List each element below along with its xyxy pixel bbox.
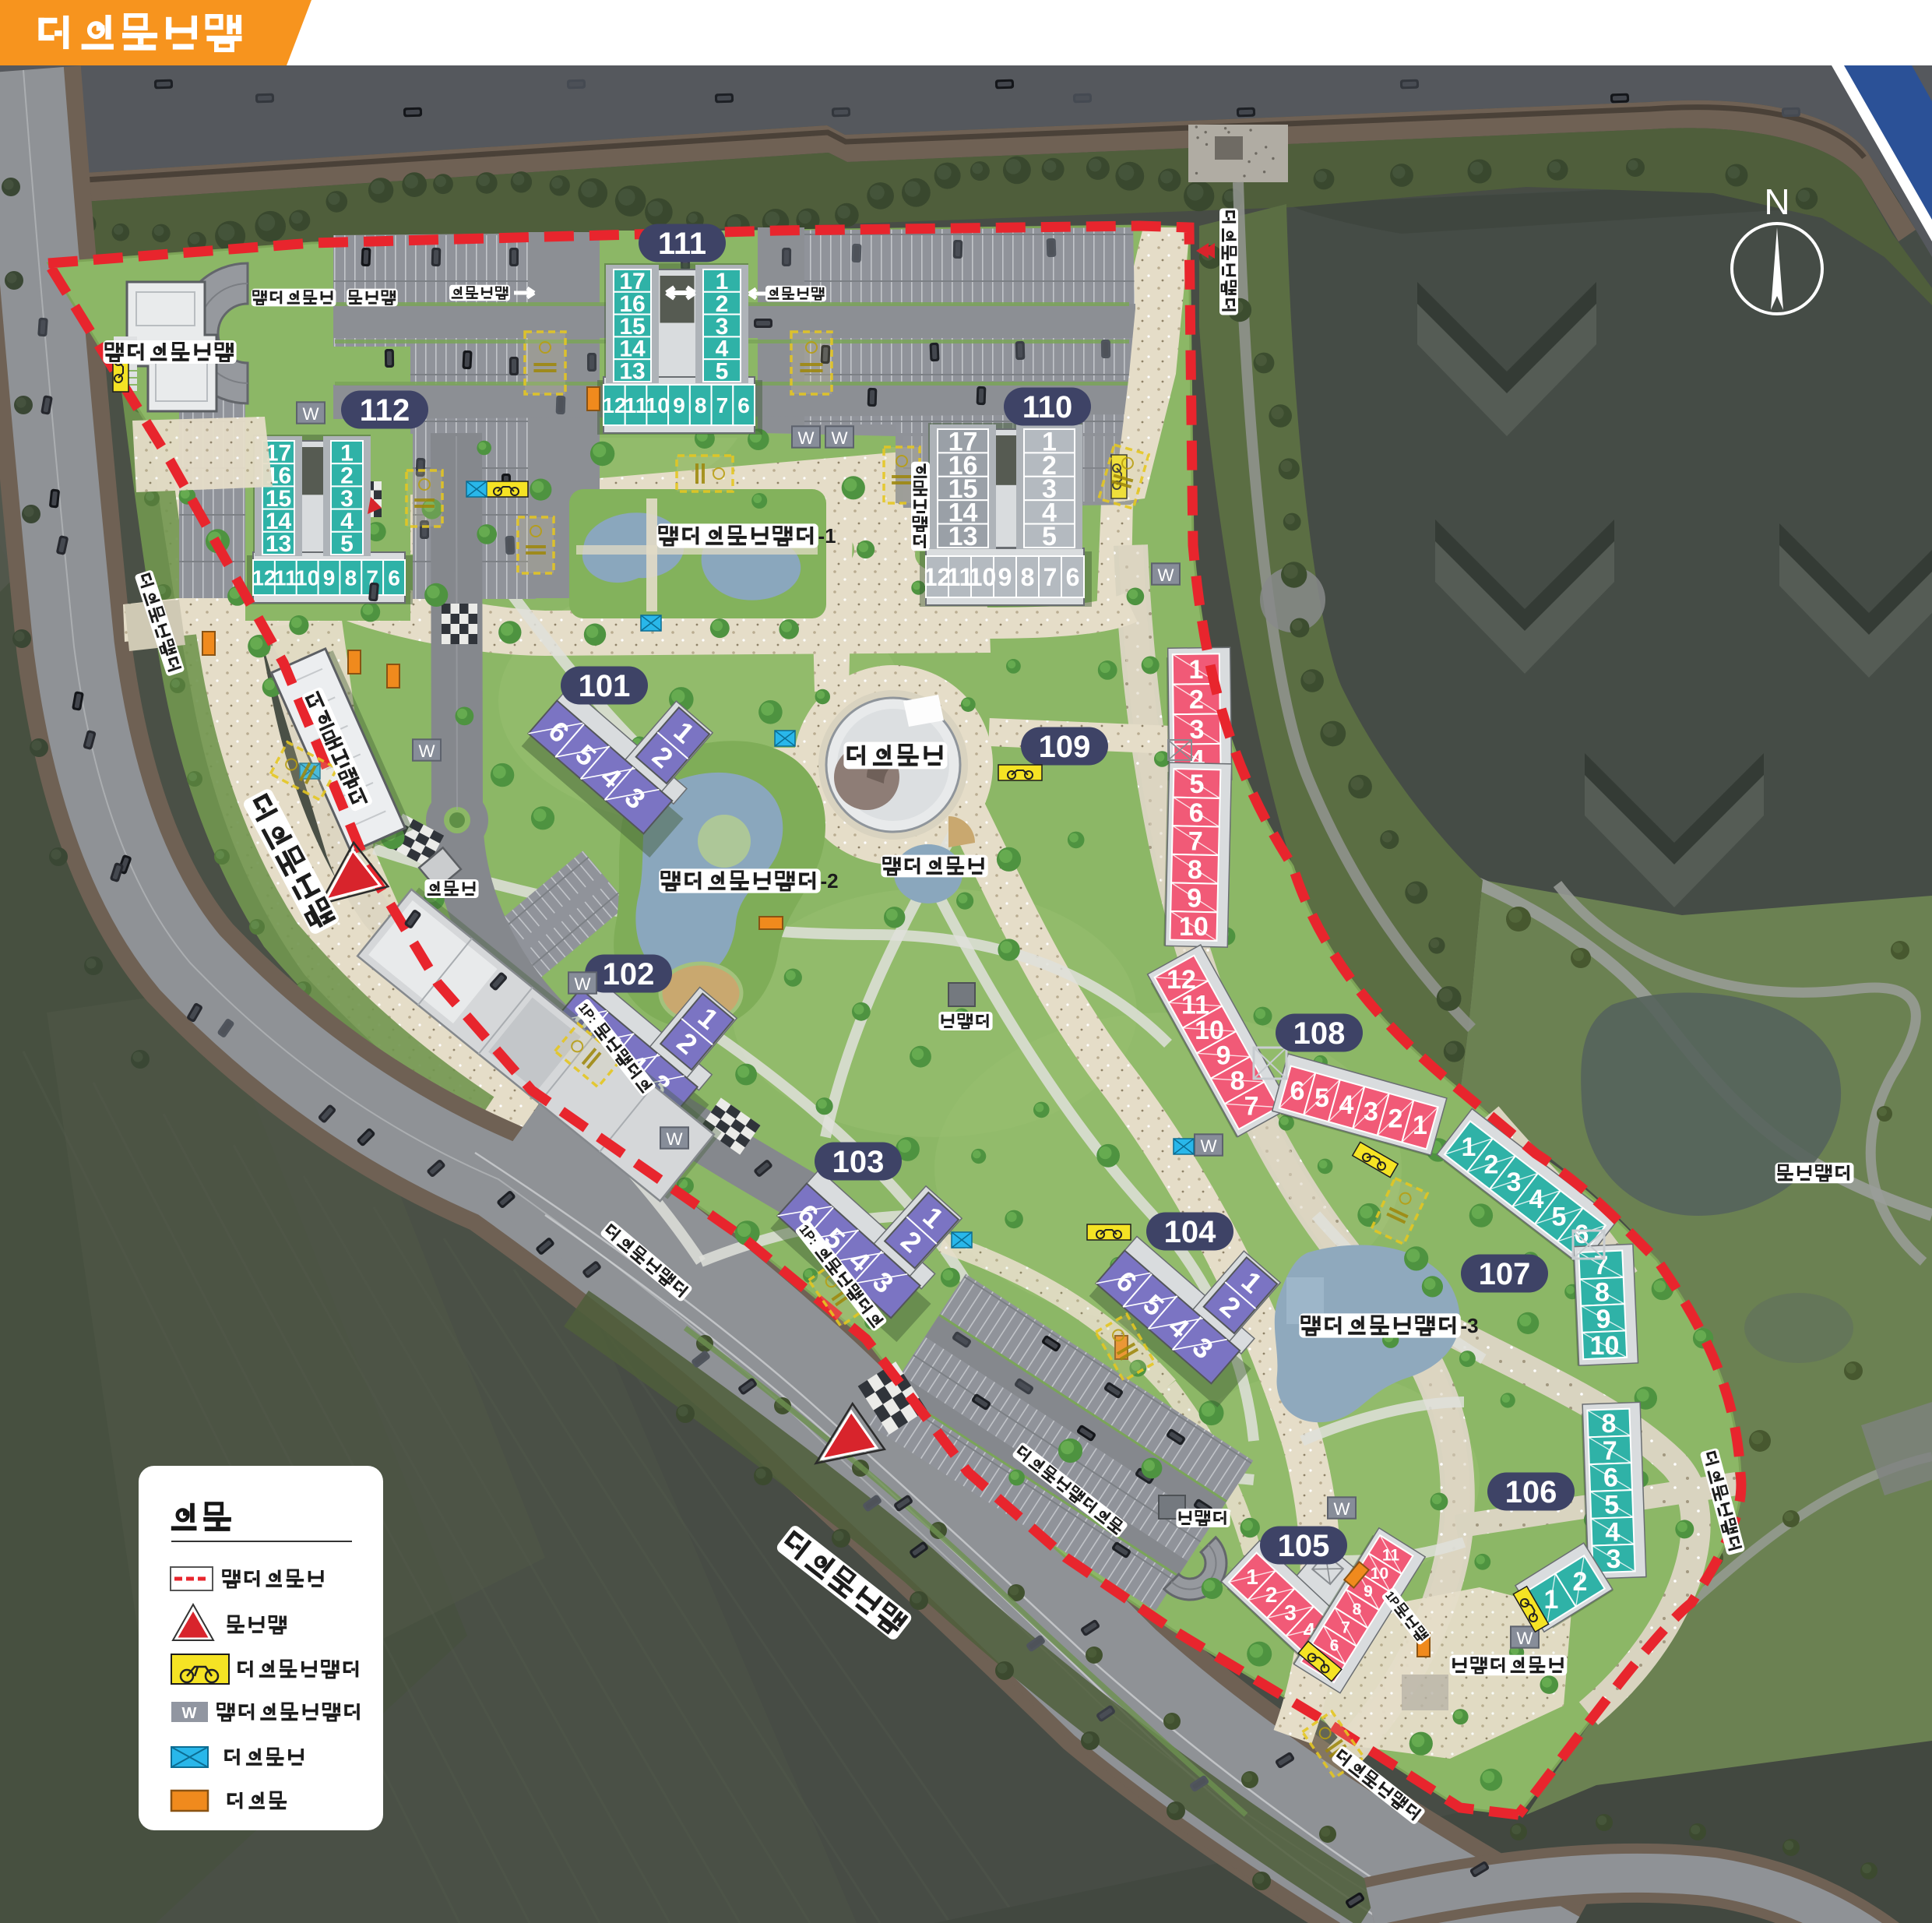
svg-text:8: 8 (695, 393, 707, 417)
svg-text:11: 11 (274, 566, 297, 590)
svg-text:N: N (1764, 181, 1789, 222)
svg-text:W: W (1200, 1136, 1216, 1156)
svg-text:3: 3 (1364, 1097, 1378, 1127)
svg-text:107: 107 (1479, 1257, 1531, 1291)
svg-text:1: 1 (1246, 1565, 1258, 1589)
svg-text:7: 7 (716, 393, 729, 417)
svg-text:-2: -2 (820, 869, 838, 893)
svg-text:111: 111 (658, 227, 706, 261)
svg-text:4: 4 (1605, 1517, 1620, 1547)
svg-text:5: 5 (1551, 1202, 1566, 1231)
svg-text:13: 13 (948, 522, 978, 551)
svg-text:8: 8 (1021, 563, 1035, 591)
svg-text:6: 6 (1066, 563, 1080, 591)
svg-text:15: 15 (266, 486, 291, 512)
svg-text:6: 6 (388, 566, 400, 590)
svg-text:102: 102 (603, 957, 655, 991)
svg-text:9: 9 (1187, 884, 1202, 914)
svg-text:W: W (1333, 1499, 1350, 1519)
svg-text:1: 1 (340, 440, 354, 466)
svg-text:2: 2 (1265, 1583, 1278, 1607)
svg-text:108: 108 (1293, 1016, 1346, 1051)
svg-text:9: 9 (323, 566, 336, 590)
svg-text:-3: -3 (1460, 1314, 1478, 1337)
svg-text:10: 10 (1371, 1565, 1388, 1583)
svg-text:5: 5 (1042, 522, 1057, 551)
svg-text:5: 5 (1314, 1083, 1329, 1113)
svg-text:11: 11 (625, 393, 648, 417)
svg-text:2: 2 (1573, 1567, 1588, 1597)
svg-text:12: 12 (252, 566, 276, 590)
svg-text:6: 6 (737, 393, 750, 417)
svg-text:4: 4 (340, 509, 354, 534)
svg-text:6: 6 (1330, 1637, 1339, 1655)
svg-text:5: 5 (716, 358, 729, 384)
svg-text:10: 10 (646, 393, 670, 417)
svg-text:104: 104 (1164, 1215, 1216, 1249)
svg-text:4: 4 (1529, 1185, 1543, 1214)
svg-text:10: 10 (1179, 912, 1209, 942)
svg-text:7: 7 (1244, 1092, 1259, 1122)
svg-text:9: 9 (998, 563, 1012, 591)
svg-text:W: W (831, 428, 847, 448)
svg-text:-1: -1 (818, 524, 836, 548)
svg-text:6: 6 (1290, 1076, 1305, 1106)
svg-text:14: 14 (266, 509, 292, 534)
svg-text:2: 2 (1189, 685, 1204, 715)
svg-text:101: 101 (579, 669, 631, 703)
svg-text:9: 9 (1596, 1305, 1611, 1334)
svg-text:8: 8 (345, 566, 357, 590)
svg-text:W: W (418, 741, 435, 761)
svg-text:5: 5 (1190, 770, 1205, 799)
svg-text:8: 8 (1595, 1277, 1610, 1307)
svg-text:7: 7 (1188, 826, 1203, 856)
svg-text:W: W (302, 404, 318, 424)
svg-text:8: 8 (1188, 855, 1202, 885)
svg-text:9: 9 (1216, 1041, 1231, 1071)
svg-text:13: 13 (266, 531, 291, 557)
svg-text:2: 2 (340, 463, 354, 489)
svg-text:112: 112 (360, 393, 410, 428)
svg-text:8: 8 (1230, 1066, 1245, 1096)
svg-text:6: 6 (1189, 798, 1204, 828)
svg-text:11: 11 (1382, 1547, 1400, 1565)
svg-text:5: 5 (1604, 1491, 1619, 1520)
svg-text:2: 2 (1484, 1150, 1499, 1180)
svg-text:3: 3 (1284, 1601, 1297, 1625)
svg-text:7: 7 (1341, 1618, 1350, 1636)
svg-text:6: 6 (1603, 1463, 1618, 1493)
svg-text:W: W (1157, 565, 1174, 585)
svg-text:W: W (574, 974, 590, 994)
svg-text:10: 10 (295, 566, 319, 590)
svg-text:106: 106 (1505, 1475, 1557, 1509)
svg-text:3: 3 (1507, 1168, 1522, 1197)
svg-text:109: 109 (1039, 730, 1091, 764)
svg-text:9: 9 (1364, 1583, 1373, 1601)
svg-text:3: 3 (340, 486, 354, 512)
svg-text:W: W (666, 1129, 682, 1149)
svg-text:7: 7 (1043, 563, 1057, 591)
svg-text:5: 5 (340, 531, 354, 557)
svg-text:103: 103 (832, 1145, 885, 1179)
svg-text:1: 1 (1462, 1132, 1476, 1162)
svg-text:10: 10 (969, 563, 997, 591)
svg-text:1: 1 (1413, 1111, 1427, 1140)
svg-text:3: 3 (1606, 1544, 1621, 1574)
svg-text:105: 105 (1278, 1529, 1330, 1563)
svg-text:12: 12 (602, 393, 626, 417)
svg-text:13: 13 (619, 358, 645, 384)
svg-text:W: W (1516, 1629, 1533, 1648)
svg-text:8: 8 (1353, 1601, 1362, 1618)
svg-text:1: 1 (1544, 1585, 1559, 1615)
svg-text:4: 4 (1339, 1090, 1354, 1120)
svg-text:110: 110 (1022, 390, 1073, 424)
svg-text:2: 2 (1388, 1104, 1403, 1133)
svg-text:10: 10 (1590, 1331, 1620, 1361)
svg-text:1: 1 (1189, 655, 1204, 685)
svg-text:W: W (797, 428, 814, 448)
svg-text:7: 7 (1603, 1436, 1617, 1466)
svg-text:W: W (182, 1705, 197, 1722)
svg-text:9: 9 (673, 393, 685, 417)
svg-text:8: 8 (1602, 1409, 1617, 1439)
